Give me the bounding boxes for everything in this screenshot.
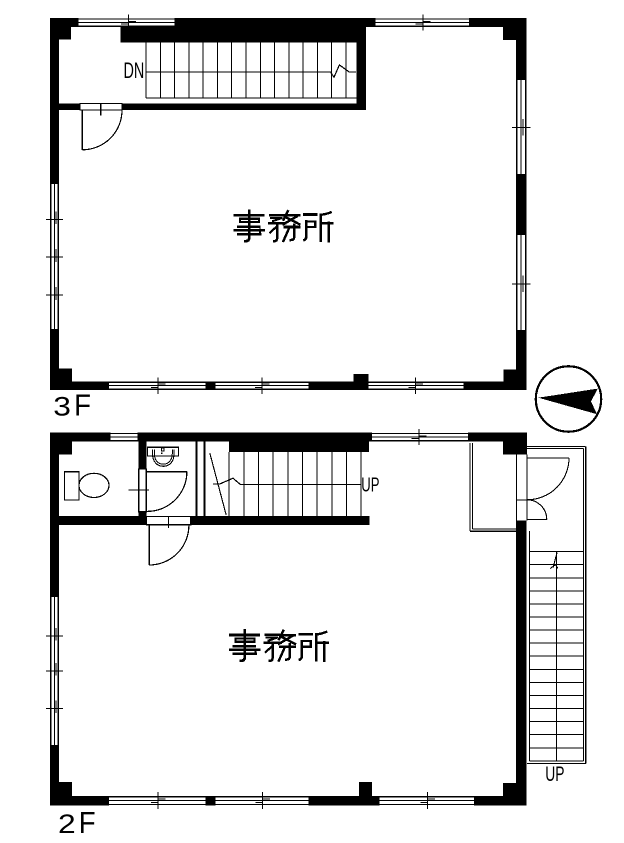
svg-text:UP: UP: [545, 762, 564, 786]
svg-text:UP: UP: [361, 474, 379, 496]
svg-text:F: F: [79, 806, 96, 841]
svg-text:3: 3: [53, 393, 71, 422]
svg-text:DN: DN: [124, 59, 145, 84]
svg-text:F: F: [74, 388, 91, 423]
svg-text:2: 2: [58, 810, 76, 839]
